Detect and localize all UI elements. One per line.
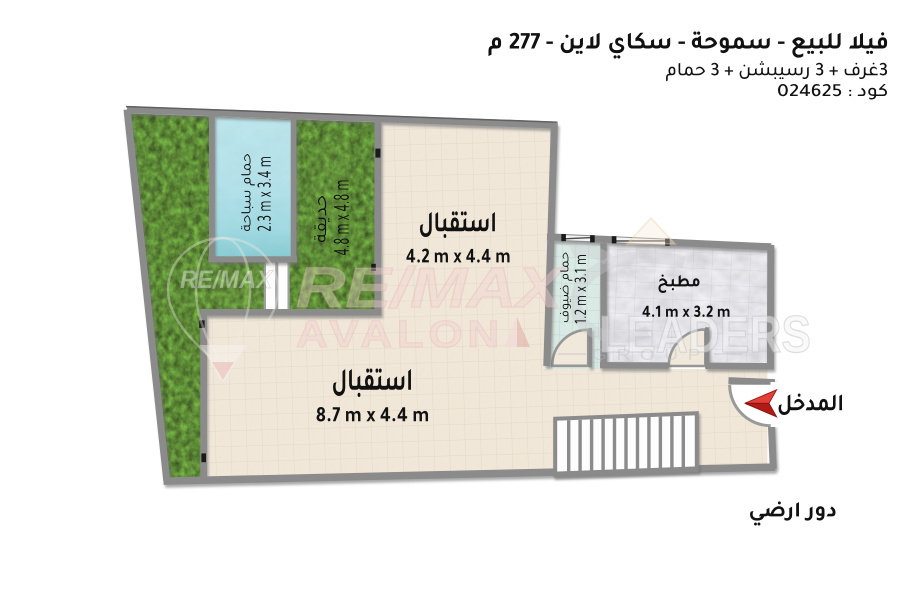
svg-text:RE/MAX: RE/MAX	[180, 266, 273, 294]
svg-text:AVALON: AVALON	[296, 314, 504, 356]
svg-text:RE/MAX: RE/MAX	[296, 256, 566, 320]
svg-text:GROUP: GROUP	[592, 347, 710, 364]
